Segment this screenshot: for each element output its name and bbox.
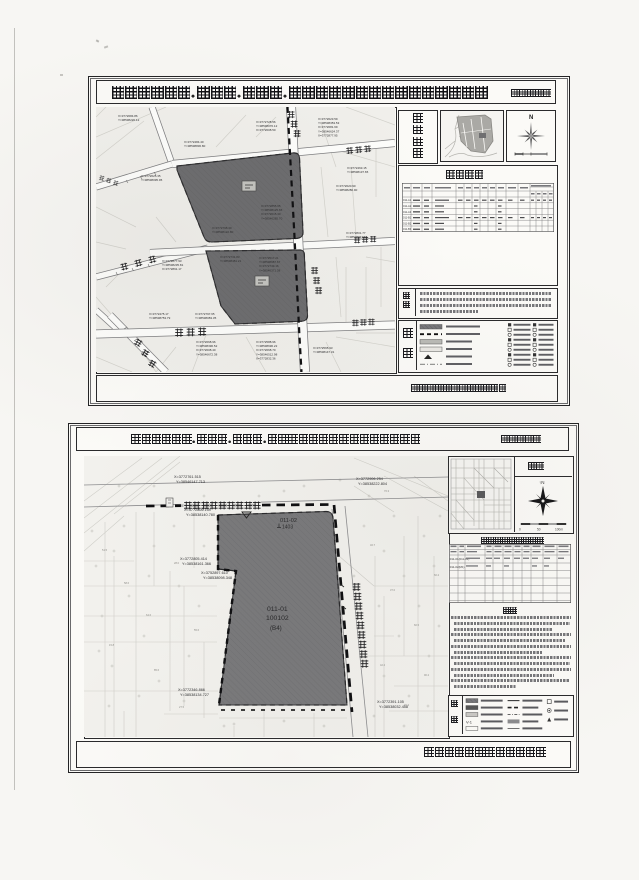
svg-text:X=3772761.515: X=3772761.515 xyxy=(174,475,201,479)
svg-text:X=3772806.159: X=3772806.159 xyxy=(184,508,211,512)
svg-text:X=3772877.95: X=3772877.95 xyxy=(318,133,338,137)
svg-text:011-A1: 011-A1 xyxy=(403,198,412,202)
svg-text:Y=38538836.80: Y=38538836.80 xyxy=(184,144,206,148)
svg-text:X=3772805.414: X=3772805.414 xyxy=(180,557,207,561)
svg-text:28.0: 28.0 xyxy=(174,561,180,565)
svg-text:Y=38538083.35: Y=38538083.35 xyxy=(195,316,217,320)
svg-text:Y=38538753.79: Y=38538753.79 xyxy=(149,316,171,320)
svg-text:37.0: 37.0 xyxy=(390,588,396,592)
svg-text:Y=38538095.95: Y=38538095.95 xyxy=(141,178,163,182)
svg-text:60.5: 60.5 xyxy=(414,623,420,627)
svg-text:011-01(011-01): 011-01(011-01) xyxy=(450,557,470,561)
svg-text:Y=38538134.727: Y=38538134.727 xyxy=(180,693,209,697)
svg-text:51.5: 51.5 xyxy=(102,548,108,552)
svg-text:1403: 1403 xyxy=(282,525,293,531)
svg-text:90.2: 90.2 xyxy=(424,673,430,677)
svg-text:Y=38538032.458: Y=38538032.458 xyxy=(379,705,408,709)
svg-text:X=3752897.610: X=3752897.610 xyxy=(201,571,228,575)
svg-text:32.7: 32.7 xyxy=(370,543,376,547)
svg-text:011-A3: 011-A3 xyxy=(403,210,412,214)
svg-text:X=3772346.866: X=3772346.866 xyxy=(178,688,205,692)
svg-text:42.2: 42.2 xyxy=(380,663,386,667)
svg-text:100102: 100102 xyxy=(266,615,289,622)
svg-text:Y=38538220.12: Y=38538220.12 xyxy=(118,118,140,122)
svg-text:85.6: 85.6 xyxy=(154,668,160,672)
svg-text:011-A2: 011-A2 xyxy=(403,204,412,208)
svg-text:50: 50 xyxy=(537,528,541,532)
svg-text:Y=38538122.80: Y=38538122.80 xyxy=(212,230,234,234)
svg-text:Y=38538222.804: Y=38538222.804 xyxy=(358,482,387,486)
svg-text:↑N: ↑N xyxy=(539,480,545,485)
svg-text:15.8: 15.8 xyxy=(109,643,115,647)
svg-text:N: N xyxy=(529,115,533,121)
svg-text:011-02(M1): 011-02(M1) xyxy=(450,565,465,569)
svg-text:011-02: 011-02 xyxy=(280,518,297,524)
svg-text:X=3772391.105: X=3772391.105 xyxy=(377,700,404,704)
svg-text:X=3772832.36: X=3772832.36 xyxy=(256,356,276,360)
svg-text:60.2: 60.2 xyxy=(434,573,440,577)
svg-text:Y=38538280.90: Y=38538280.90 xyxy=(336,188,358,192)
svg-text:011-B2: 011-B2 xyxy=(403,221,412,225)
svg-text:0: 0 xyxy=(519,528,521,532)
svg-text:X=3772906.254: X=3772906.254 xyxy=(356,477,383,481)
svg-text:55.6: 55.6 xyxy=(194,628,200,632)
svg-text:Y=38538481.21: Y=38538481.21 xyxy=(220,259,242,263)
svg-text:Y=38538147.31: Y=38538147.31 xyxy=(313,350,335,354)
svg-text:27.5: 27.5 xyxy=(179,705,185,709)
svg-text:011-B3: 011-B3 xyxy=(403,227,412,231)
svg-text:X=3772608.50: X=3772608.50 xyxy=(256,128,276,132)
svg-text:100m: 100m xyxy=(555,528,563,532)
svg-text:58.6: 58.6 xyxy=(124,581,130,585)
svg-text:Y=38538137.65: Y=38538137.65 xyxy=(347,170,369,174)
svg-text:64.6: 64.6 xyxy=(146,613,152,617)
svg-text:Y=38538847.69: Y=38538847.69 xyxy=(346,235,368,239)
svg-text:011-01: 011-01 xyxy=(267,606,288,613)
svg-text:Y=38538161.366: Y=38538161.366 xyxy=(182,562,211,566)
svg-text:(B4): (B4) xyxy=(270,625,282,632)
svg-text:011-B1: 011-B1 xyxy=(403,216,412,220)
svg-text:Y=38538140.780: Y=38538140.780 xyxy=(186,513,215,517)
svg-text:X=3772891.17: X=3772891.17 xyxy=(162,267,182,271)
svg-text:V-1: V-1 xyxy=(466,719,472,724)
svg-text:76.3: 76.3 xyxy=(384,489,390,493)
svg-text:Y=38546371.38: Y=38546371.38 xyxy=(259,268,281,272)
svg-text:Y=38546285.70: Y=38546285.70 xyxy=(261,216,283,220)
svg-text:Y=38546147.713: Y=38546147.713 xyxy=(176,480,205,484)
svg-text:Y=38546672.38: Y=38546672.38 xyxy=(196,352,218,356)
svg-text:Y=38538098.348: Y=38538098.348 xyxy=(203,576,232,580)
